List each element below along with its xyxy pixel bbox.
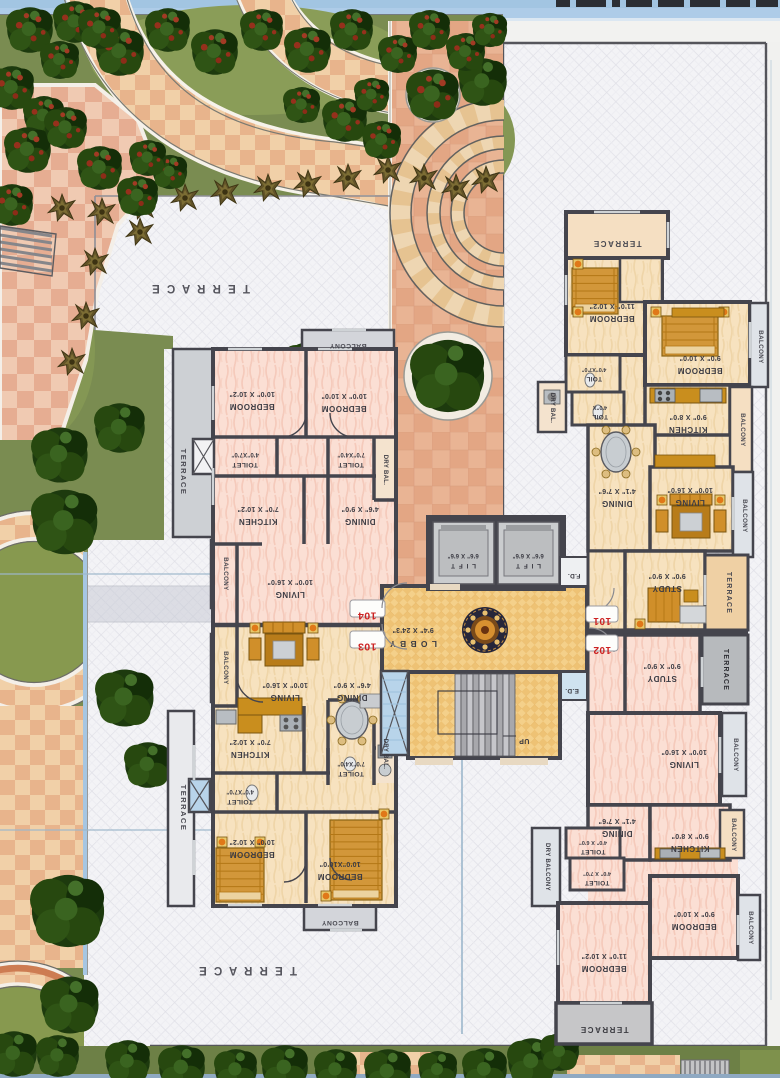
svg-text:10'0" X 10'2": 10'0" X 10'2" (229, 390, 275, 397)
svg-text:DRY BAL.: DRY BAL. (382, 455, 388, 485)
svg-text:4'6" X 9'0": 4'6" X 9'0" (341, 505, 378, 512)
svg-text:BALCONY: BALCONY (732, 738, 739, 772)
svg-text:KITCHEN: KITCHEN (670, 844, 709, 853)
svg-text:9'0" X 9'0": 9'0" X 9'0" (643, 662, 680, 669)
svg-text:TERRACE: TERRACE (579, 1025, 628, 1034)
svg-text:BALCONY: BALCONY (739, 413, 746, 447)
svg-text:BEDROOM: BEDROOM (229, 850, 274, 859)
svg-text:DRY BAL.: DRY BAL. (382, 739, 388, 769)
svg-text:BALCONY: BALCONY (757, 330, 764, 364)
svg-text:4'0" X 7'0": 4'0" X 7'0" (583, 870, 611, 876)
svg-text:L I F T: L I F T (450, 562, 476, 569)
svg-text:104: 104 (357, 610, 376, 622)
svg-text:TOILET: TOILET (338, 461, 364, 468)
svg-text:11'0" X 10'2": 11'0" X 10'2" (589, 302, 634, 309)
svg-text:TOILET: TOILET (585, 879, 610, 886)
svg-text:6'6" X 6'6": 6'6" X 6'6" (447, 552, 478, 558)
svg-text:9'4" X 24'3": 9'4" X 24'3" (392, 626, 434, 633)
svg-text:UP: UP (519, 737, 530, 744)
svg-text:TOILET: TOILET (338, 770, 364, 777)
svg-text:TOILET: TOILET (232, 461, 258, 468)
svg-text:KITCHEN: KITCHEN (238, 517, 277, 526)
svg-text:BALCONY: BALCONY (222, 557, 229, 591)
svg-text:BALCONY: BALCONY (747, 911, 754, 945)
svg-text:L O B B Y: L O B B Y (389, 639, 437, 649)
svg-text:KITCHEN: KITCHEN (230, 750, 269, 759)
svg-text:10'0" X 16'0": 10'0" X 16'0" (267, 578, 313, 585)
svg-text:102: 102 (593, 644, 611, 655)
svg-text:BEDROOM: BEDROOM (229, 402, 274, 411)
svg-text:10'0" X 16'0": 10'0" X 16'0" (262, 681, 308, 688)
svg-text:7'0"X4'0": 7'0"X4'0" (337, 451, 365, 457)
svg-text:10'0" X 16'0": 10'0" X 16'0" (667, 486, 713, 493)
svg-text:9'0" X 8'0": 9'0" X 8'0" (671, 832, 708, 839)
svg-text:TOIL: TOIL (592, 413, 608, 420)
svg-text:4'1" X 7'6": 4'1" X 7'6" (598, 817, 635, 824)
svg-text:DINING: DINING (337, 693, 368, 702)
svg-text:TOILET: TOILET (581, 848, 606, 855)
svg-text:BALCONY: BALCONY (730, 818, 737, 852)
svg-text:STUDY: STUDY (652, 584, 682, 593)
svg-text:4'0"X7'0": 4'0"X7'0" (226, 788, 254, 794)
svg-text:BEDROOM: BEDROOM (317, 872, 362, 881)
svg-text:9'0" X 9'0": 9'0" X 9'0" (648, 572, 685, 579)
svg-text:4'0"X7'0": 4'0"X7'0" (581, 366, 606, 372)
svg-text:BALCONY: BALCONY (321, 919, 358, 926)
svg-text:LIVING: LIVING (669, 760, 699, 769)
svg-text:7'0" X 10'2": 7'0" X 10'2" (229, 738, 271, 745)
svg-text:4'0"X: 4'0"X (593, 404, 607, 410)
svg-text:7'0"X4'0": 7'0"X4'0" (337, 760, 365, 766)
svg-text:4'1" X 7'6": 4'1" X 7'6" (598, 487, 635, 494)
svg-text:11'0" X 10'2": 11'0" X 10'2" (581, 952, 626, 959)
svg-text:T E R R A C E: T E R R A C E (150, 282, 250, 294)
svg-text:BALCONY: BALCONY (329, 342, 366, 349)
svg-text:BEDROOM: BEDROOM (589, 314, 634, 323)
svg-text:BALCONY: BALCONY (741, 499, 748, 533)
svg-text:DINING: DINING (345, 517, 376, 526)
svg-text:6'6" X 6'6": 6'6" X 6'6" (512, 552, 543, 558)
svg-text:DRY BALCONY: DRY BALCONY (544, 843, 550, 891)
svg-text:LIVING: LIVING (275, 590, 305, 599)
svg-text:TERRACE: TERRACE (179, 785, 188, 832)
svg-text:LIVING: LIVING (675, 498, 705, 507)
svg-text:BEDROOM: BEDROOM (581, 964, 626, 973)
svg-text:TERRACE: TERRACE (592, 239, 641, 248)
svg-text:TERRACE: TERRACE (722, 649, 729, 691)
svg-text:10'0"X10'0": 10'0"X10'0" (319, 860, 360, 867)
svg-text:BALCONY: BALCONY (222, 651, 229, 685)
svg-text:F.D.: F.D. (568, 572, 581, 579)
svg-text:7'0" X 10'2": 7'0" X 10'2" (237, 505, 279, 512)
svg-text:10'0" X 10'0": 10'0" X 10'0" (321, 392, 367, 399)
svg-text:DINING: DINING (602, 499, 633, 508)
svg-text:L I F T: L I F T (515, 562, 541, 569)
svg-text:9'0" X 10'0": 9'0" X 10'0" (673, 910, 715, 917)
svg-text:DINING: DINING (602, 829, 633, 838)
svg-text:10'0" X 10'2": 10'0" X 10'2" (229, 838, 275, 845)
svg-text:KITCHEN: KITCHEN (668, 425, 707, 434)
svg-text:BEDROOM: BEDROOM (677, 366, 722, 375)
svg-text:STUDY: STUDY (647, 674, 677, 683)
svg-text:4'0" X 6'0": 4'0" X 6'0" (579, 839, 607, 845)
svg-text:BEDROOM: BEDROOM (321, 404, 366, 413)
svg-text:9'0" X 8'0": 9'0" X 8'0" (669, 413, 706, 420)
svg-text:BEDROOM: BEDROOM (671, 922, 716, 931)
svg-text:TERRACE: TERRACE (179, 449, 188, 496)
svg-text:TOIL: TOIL (586, 375, 602, 382)
svg-text:T E R R A C E: T E R R A C E (197, 964, 297, 976)
svg-text:DRY BAL.: DRY BAL. (549, 393, 555, 423)
svg-text:LIVING: LIVING (270, 693, 300, 702)
svg-text:101: 101 (593, 615, 611, 626)
svg-text:TERRACE: TERRACE (725, 572, 732, 614)
svg-text:4'6" X 9'0": 4'6" X 9'0" (333, 681, 370, 688)
svg-text:10'0" X 16'0": 10'0" X 16'0" (661, 748, 707, 755)
svg-text:E.D.: E.D. (565, 687, 579, 694)
svg-text:103: 103 (357, 641, 376, 653)
svg-text:4'0"X7'0": 4'0"X7'0" (231, 451, 259, 457)
svg-text:TOILET: TOILET (227, 798, 253, 805)
svg-text:9'0" X 10'0": 9'0" X 10'0" (679, 354, 721, 361)
